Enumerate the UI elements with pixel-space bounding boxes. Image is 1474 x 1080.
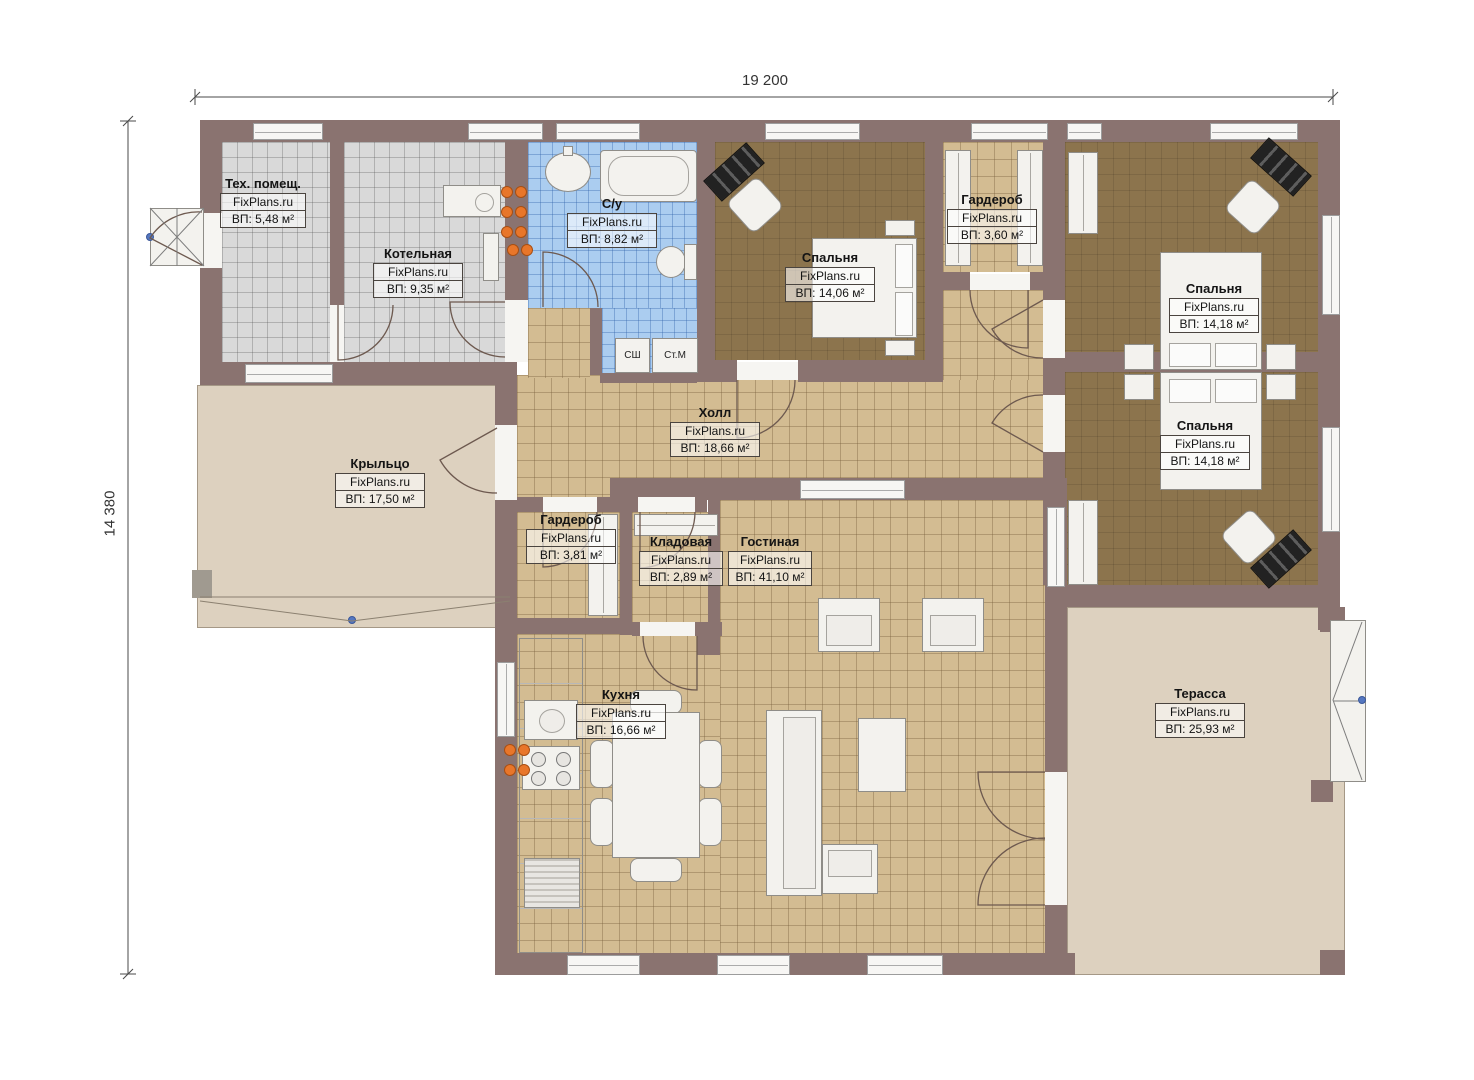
wall (697, 622, 720, 655)
radiator-dot (515, 226, 527, 238)
bathroom-sink (545, 152, 591, 192)
watermark: FixPlans.ru (728, 551, 812, 569)
water-heater (483, 233, 499, 281)
toilet-tank (684, 244, 697, 280)
toilet (656, 246, 686, 278)
room-area: ВП: 41,10 м² (728, 569, 812, 586)
room-name: Гостиная (728, 534, 812, 549)
terrace-area (1067, 607, 1345, 975)
door-opening (970, 274, 1030, 290)
room-label-storage: Кладовая FixPlans.ru ВП: 2,89 м² (639, 534, 723, 586)
radiator (507, 244, 533, 256)
dryer-cabinet: СШ (615, 338, 650, 373)
marker-dot (1358, 696, 1366, 704)
room-area: ВП: 14,18 м² (1169, 316, 1259, 333)
room-floor-hall (943, 290, 1043, 380)
sofa (822, 844, 878, 894)
stove (522, 746, 580, 790)
wall (517, 618, 632, 634)
room-name: Спальня (1169, 281, 1259, 296)
bathtub (600, 150, 697, 202)
window (765, 123, 860, 140)
room-area: ВП: 8,82 м² (567, 231, 657, 248)
room-area: ВП: 2,89 м² (639, 569, 723, 586)
nightstand (1124, 344, 1154, 370)
window (567, 955, 640, 975)
dining-chair (630, 858, 682, 882)
dining-chair (590, 798, 614, 846)
watermark: FixPlans.ru (220, 193, 306, 211)
door-opening (737, 362, 798, 380)
wall (943, 272, 970, 290)
room-label-bedroom-2: Спальня FixPlans.ru ВП: 14,18 м² (1169, 281, 1259, 333)
nightstand (1266, 344, 1296, 370)
dimension-width-label: 19 200 (680, 72, 850, 89)
marker-dot (348, 616, 356, 624)
wall (1065, 585, 1340, 607)
armchair (818, 598, 880, 652)
room-area: ВП: 25,93 м² (1155, 721, 1245, 738)
watermark: FixPlans.ru (335, 473, 425, 491)
nightstand (1124, 374, 1154, 400)
room-area: ВП: 14,18 м² (1160, 453, 1250, 470)
window (556, 123, 640, 140)
door-opening (1043, 395, 1065, 452)
washing-machine: Ст.М (652, 338, 698, 373)
pillow (1169, 379, 1211, 403)
watermark: FixPlans.ru (576, 704, 666, 722)
wall (695, 497, 707, 512)
faucet (563, 146, 573, 156)
wall (798, 360, 943, 382)
room-name: Крыльцо (335, 456, 425, 471)
watermark: FixPlans.ru (785, 267, 875, 285)
room-label-bedroom-3: Спальня FixPlans.ru ВП: 14,18 м² (1160, 418, 1250, 470)
watermark: FixPlans.ru (1155, 703, 1245, 721)
room-area: ВП: 9,35 м² (373, 281, 463, 298)
watermark: FixPlans.ru (567, 213, 657, 231)
watermark: FixPlans.ru (373, 263, 463, 281)
room-label-tech: Тех. помещ. FixPlans.ru ВП: 5,48 м² (220, 176, 306, 228)
wall (330, 142, 344, 305)
room-area: ВП: 5,48 м² (220, 211, 306, 228)
room-name: Холл (670, 405, 760, 420)
nightstand (885, 220, 915, 236)
coffee-table (858, 718, 906, 792)
window (867, 955, 943, 975)
room-area: ВП: 18,66 м² (670, 440, 760, 457)
radiator (501, 226, 527, 238)
window (1210, 123, 1298, 140)
nightstand (1266, 374, 1296, 400)
room-label-living: Гостиная FixPlans.ru ВП: 41,10 м² (728, 534, 812, 586)
radiator-dot (507, 244, 519, 256)
pillow (1215, 379, 1257, 403)
room-area: ВП: 16,66 м² (576, 722, 666, 739)
pillow (895, 244, 913, 288)
wall (925, 142, 943, 382)
pillow (1169, 343, 1211, 367)
room-label-kitchen: Кухня FixPlans.ru ВП: 16,66 м² (576, 687, 666, 739)
marker-dot (146, 233, 154, 241)
pillow (895, 292, 913, 336)
watermark: FixPlans.ru (1160, 435, 1250, 453)
room-name: Терасса (1155, 686, 1245, 701)
radiator (501, 186, 527, 198)
room-floor-hall (528, 308, 590, 378)
door-opening (330, 305, 344, 362)
shelf (634, 514, 718, 536)
washer-label: Ст.М (664, 350, 686, 361)
wall (590, 308, 602, 375)
armchair (922, 598, 984, 652)
wall (620, 497, 632, 635)
wall (517, 497, 543, 512)
room-label-bathroom: С/у FixPlans.ru ВП: 8,82 м² (567, 196, 657, 248)
room-label-wardrobe-2: Гардероб FixPlans.ru ВП: 3,81 м² (526, 512, 616, 564)
door-opening (638, 497, 695, 512)
door-opening (1043, 300, 1065, 358)
door-opening (1045, 772, 1067, 905)
dining-chair (698, 798, 722, 846)
window (1322, 215, 1340, 315)
room-area: ВП: 3,60 м² (947, 227, 1037, 244)
wall (1318, 120, 1340, 630)
room-name: Кухня (576, 687, 666, 702)
radiator (504, 764, 530, 776)
room-area: ВП: 3,81 м² (526, 547, 616, 564)
window (468, 123, 543, 140)
wall (632, 622, 640, 636)
room-floor-tech (222, 142, 330, 362)
wall (1030, 272, 1043, 290)
wall (1043, 142, 1065, 300)
radiator-dot (515, 186, 527, 198)
room-name: Гардероб (526, 512, 616, 527)
dryer-label: СШ (624, 350, 640, 361)
window (245, 364, 333, 383)
radiator-dot (521, 244, 533, 256)
room-label-hall: Холл FixPlans.ru ВП: 18,66 м² (670, 405, 760, 457)
radiator-dot (501, 206, 513, 218)
terrace-post (1311, 780, 1333, 802)
wall (697, 360, 737, 382)
window (253, 123, 323, 140)
room-area: ВП: 17,50 м² (335, 491, 425, 508)
room-name: С/у (567, 196, 657, 211)
watermark: FixPlans.ru (947, 209, 1037, 227)
window (1047, 507, 1065, 587)
watermark: FixPlans.ru (639, 551, 723, 569)
room-area: ВП: 14,06 м² (785, 285, 875, 302)
sofa (766, 710, 822, 896)
dimension-height-label: 14 380 (102, 429, 119, 599)
watermark: FixPlans.ru (526, 529, 616, 547)
kitchen-sink (524, 700, 578, 740)
room-name: Спальня (1160, 418, 1250, 433)
room-label-boiler: Котельная FixPlans.ru ВП: 9,35 м² (373, 246, 463, 298)
window (717, 955, 790, 975)
radiator-dot (501, 226, 513, 238)
wall (495, 500, 517, 975)
wall (1045, 905, 1067, 975)
dining-chair (590, 740, 614, 788)
radiator-dot (515, 206, 527, 218)
pillow (1215, 343, 1257, 367)
nightstand (885, 340, 915, 356)
room-label-bedroom-1: Спальня FixPlans.ru ВП: 14,06 м² (785, 250, 875, 302)
watermark: FixPlans.ru (1169, 298, 1259, 316)
wall (1043, 358, 1065, 395)
door-opening (495, 425, 517, 500)
pass-through-opening (800, 480, 905, 499)
window (497, 662, 515, 737)
radiator-dot (504, 744, 516, 756)
watermark: FixPlans.ru (670, 422, 760, 440)
terrace-post (1320, 950, 1345, 975)
wall (600, 373, 697, 383)
entrance-steps (150, 208, 204, 266)
room-name: Гардероб (947, 192, 1037, 207)
wall (495, 362, 517, 425)
radiator-dot (518, 744, 530, 756)
door-opening (505, 300, 528, 362)
closet (1068, 152, 1098, 234)
room-name: Спальня (785, 250, 875, 265)
window (1322, 427, 1340, 532)
window (1067, 123, 1102, 140)
door-opening (543, 497, 597, 512)
window (971, 123, 1048, 140)
radiator-dot (504, 764, 516, 776)
room-name: Тех. помещ. (220, 176, 306, 191)
door-opening (640, 622, 695, 636)
radiator-dot (518, 764, 530, 776)
dining-chair (698, 740, 722, 788)
radiator-dot (501, 186, 513, 198)
room-label-wardrobe-1: Гардероб FixPlans.ru ВП: 3,60 м² (947, 192, 1037, 244)
closet (1068, 500, 1098, 585)
boiler-unit (443, 185, 501, 217)
oven (524, 858, 580, 908)
room-label-porch: Крыльцо FixPlans.ru ВП: 17,50 м² (335, 456, 425, 508)
room-name: Котельная (373, 246, 463, 261)
radiator (504, 744, 530, 756)
radiator (501, 206, 527, 218)
floor-plan-canvas: СШ Ст.М (0, 0, 1474, 1080)
room-name: Кладовая (639, 534, 723, 549)
porch-pillar (192, 570, 212, 598)
room-label-terrace: Терасса FixPlans.ru ВП: 25,93 м² (1155, 686, 1245, 738)
